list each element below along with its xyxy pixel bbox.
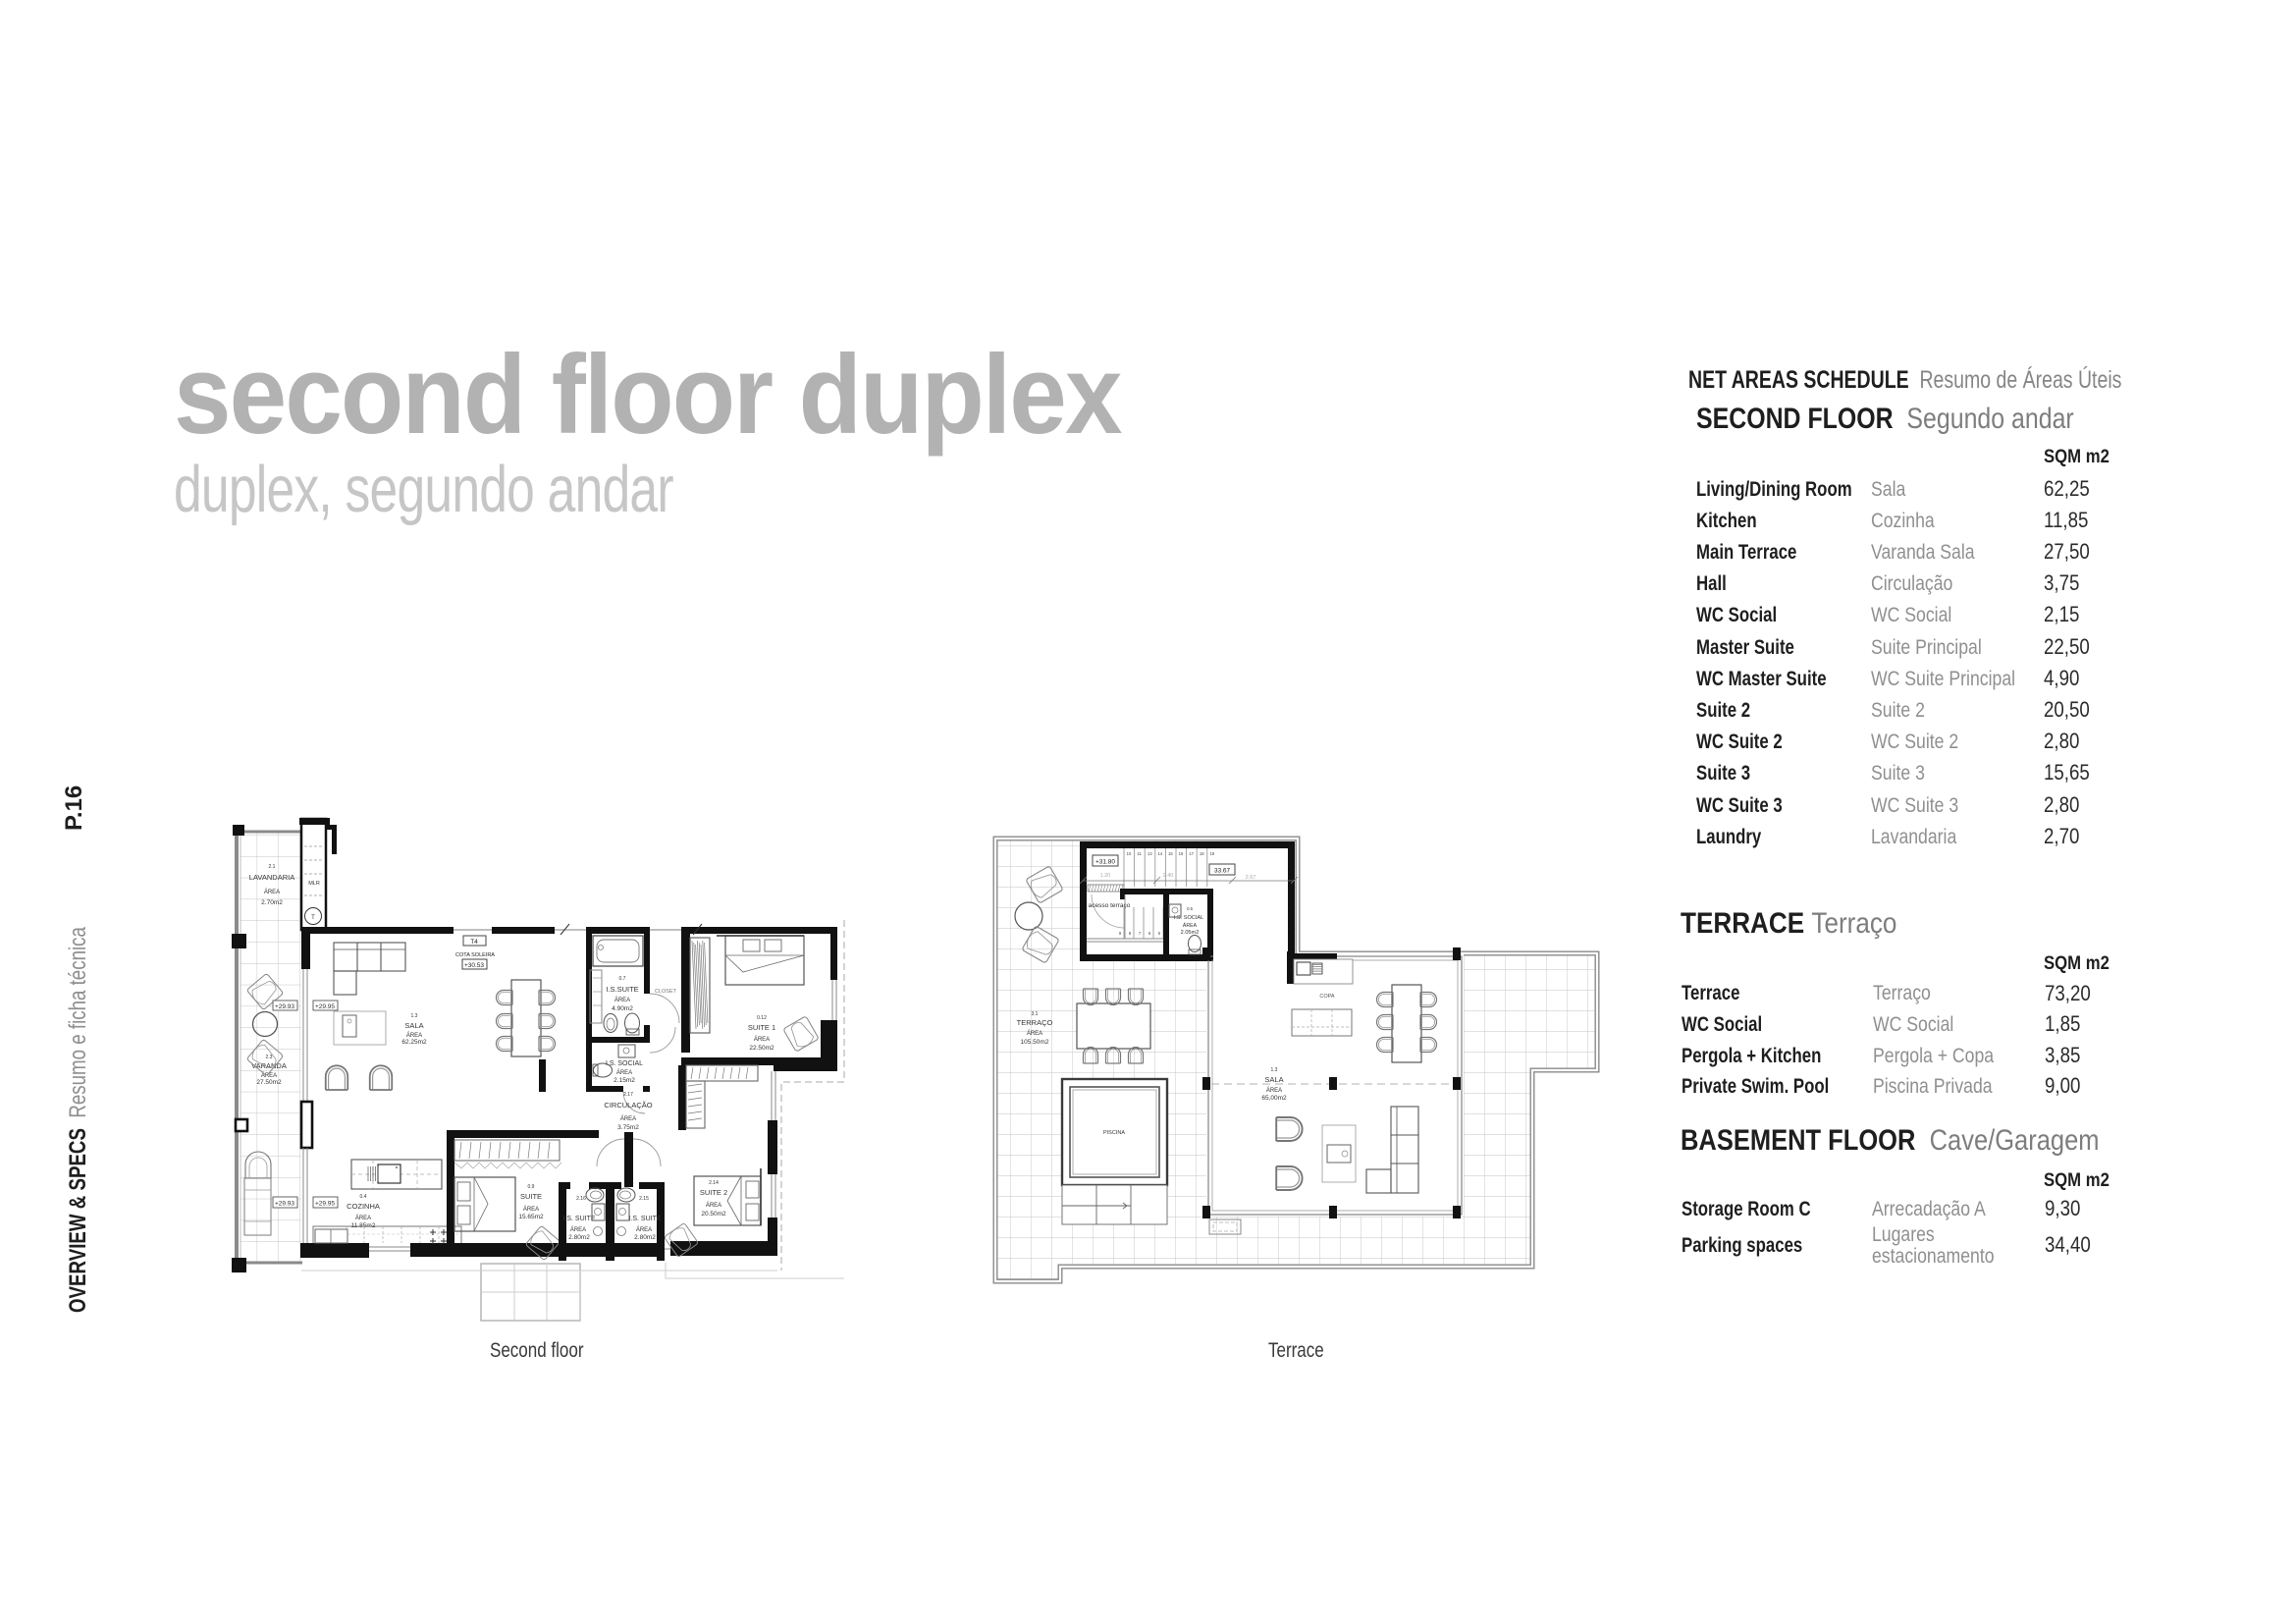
svg-text:ÁREA: ÁREA (1266, 1087, 1282, 1094)
svg-text:2.1: 2.1 (269, 864, 276, 870)
svg-text:0.9: 0.9 (528, 1184, 535, 1190)
svg-text:0.7: 0.7 (619, 976, 626, 982)
svg-text:0.4: 0.4 (360, 1194, 367, 1200)
svg-text:ÁREA: ÁREA (570, 1226, 586, 1233)
svg-text:33.67: 33.67 (1214, 868, 1231, 875)
svg-text:105.50m2: 105.50m2 (1021, 1039, 1049, 1046)
svg-text:2.3: 2.3 (266, 1055, 273, 1060)
svg-text:3.75m2: 3.75m2 (617, 1124, 639, 1131)
svg-text:ÁREA: ÁREA (620, 1115, 636, 1122)
svg-text:ÁREA: ÁREA (754, 1036, 770, 1043)
svg-text:ÁREA: ÁREA (406, 1032, 422, 1039)
svg-text:+29.95: +29.95 (315, 1003, 335, 1010)
svg-text:2.80m2: 2.80m2 (634, 1234, 656, 1241)
svg-text:ÁREA: ÁREA (355, 1215, 371, 1221)
svg-text:15.65m2: 15.65m2 (518, 1214, 544, 1220)
svg-text:1.3: 1.3 (1271, 1067, 1278, 1073)
svg-text:2.16: 2.16 (576, 1196, 586, 1202)
svg-text:1.3: 1.3 (411, 1013, 418, 1019)
svg-text:2.14: 2.14 (709, 1180, 719, 1186)
svg-text:11: 11 (1137, 851, 1142, 856)
svg-text:ÁREA: ÁREA (264, 889, 280, 895)
svg-text:15: 15 (1168, 851, 1173, 856)
svg-text:2.67: 2.67 (1246, 875, 1256, 881)
svg-text:0.12: 0.12 (757, 1015, 767, 1021)
svg-text:SALA: SALA (1264, 1075, 1283, 1084)
svg-text:2.15m2: 2.15m2 (614, 1077, 635, 1084)
svg-text:MLR: MLR (308, 881, 320, 887)
svg-text:LAVANDARIA: LAVANDARIA (249, 873, 294, 882)
svg-text:16: 16 (1179, 851, 1184, 856)
svg-text:SUITE 2: SUITE 2 (700, 1188, 727, 1197)
svg-text:SUITE 1: SUITE 1 (748, 1023, 775, 1032)
svg-text:T: T (311, 915, 315, 921)
svg-text:I.S. SUITE: I.S. SUITE (562, 1216, 595, 1222)
svg-text:ÁREA: ÁREA (1027, 1030, 1042, 1037)
svg-text:+29.95: +29.95 (315, 1201, 335, 1208)
svg-text:PISCINA: PISCINA (1103, 1130, 1125, 1136)
svg-text:+31.80: +31.80 (1095, 859, 1115, 866)
svg-text:13: 13 (1148, 851, 1152, 856)
svg-text:4.90m2: 4.90m2 (612, 1005, 633, 1012)
svg-text:10: 10 (1127, 851, 1132, 856)
svg-text:T4: T4 (470, 939, 478, 946)
svg-text:CLOSET: CLOSET (655, 989, 677, 995)
svg-text:SUITE: SUITE (520, 1192, 542, 1201)
svg-text:2.15: 2.15 (639, 1196, 649, 1202)
svg-text:+29.93: +29.93 (275, 1003, 294, 1010)
svg-text:COPA: COPA (1319, 994, 1335, 1000)
svg-text:ÁREA: ÁREA (1183, 922, 1198, 929)
svg-text:62.25m2: 62.25m2 (401, 1039, 427, 1046)
svg-text:ÁREA: ÁREA (616, 1069, 632, 1076)
svg-text:ÁREA: ÁREA (614, 997, 630, 1003)
svg-text:CIRCULAÇÃO: CIRCULAÇÃO (604, 1101, 652, 1110)
svg-text:19: 19 (1209, 851, 1214, 856)
svg-text:2.40: 2.40 (1163, 873, 1174, 879)
svg-text:ÁREA: ÁREA (636, 1226, 652, 1233)
svg-text:I.S. SOCIAL: I.S. SOCIAL (1174, 915, 1203, 921)
svg-text:I.S.SUITE: I.S.SUITE (606, 985, 638, 994)
svg-text:0.5: 0.5 (1187, 906, 1193, 911)
svg-text:2.17: 2.17 (623, 1092, 633, 1098)
svg-text:COTA SOLEIRA: COTA SOLEIRA (455, 952, 495, 958)
svg-text:2.80m2: 2.80m2 (568, 1234, 590, 1241)
svg-text:2.05m2: 2.05m2 (1181, 930, 1200, 936)
svg-text:+30.53: +30.53 (464, 962, 484, 969)
svg-text:3.1: 3.1 (1032, 1011, 1039, 1017)
svg-text:2.70m2: 2.70m2 (261, 899, 283, 906)
svg-text:1.20: 1.20 (1100, 873, 1111, 879)
svg-text:SALA: SALA (404, 1021, 423, 1030)
svg-text:I.S. SUITE: I.S. SUITE (628, 1216, 661, 1222)
svg-text:27.50m2: 27.50m2 (256, 1079, 282, 1086)
svg-text:17: 17 (1189, 851, 1194, 856)
svg-text:COZINHA: COZINHA (347, 1202, 380, 1211)
svg-text:65,00m2: 65,00m2 (1261, 1095, 1287, 1102)
svg-text:ÁREA: ÁREA (706, 1202, 721, 1209)
svg-text:22.50m2: 22.50m2 (749, 1045, 774, 1052)
svg-text:I.S. SOCIAL: I.S. SOCIAL (606, 1060, 643, 1067)
svg-text:VARANDA: VARANDA (251, 1061, 287, 1070)
svg-text:20.50m2: 20.50m2 (701, 1211, 726, 1218)
svg-text:ÁREA: ÁREA (523, 1206, 539, 1213)
svg-text:18: 18 (1200, 851, 1204, 856)
svg-text:14: 14 (1157, 851, 1162, 856)
svg-text:TERRAÇO: TERRAÇO (1017, 1018, 1053, 1027)
svg-text:+29.93: +29.93 (275, 1201, 294, 1208)
